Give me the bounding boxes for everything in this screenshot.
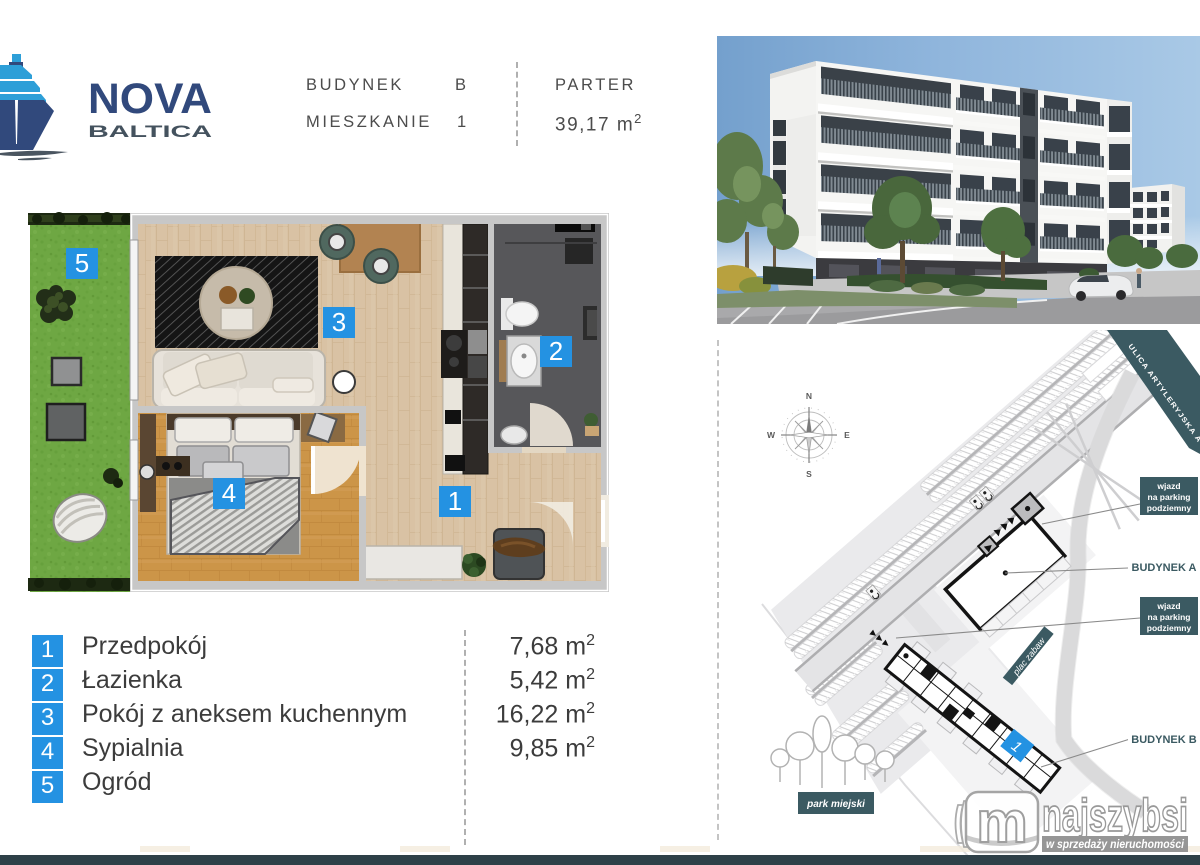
- svg-text:park miejski: park miejski: [806, 799, 865, 810]
- svg-text:W: W: [767, 430, 776, 440]
- svg-text:BUDYNEK B: BUDYNEK B: [1131, 734, 1196, 746]
- svg-text:S: S: [806, 469, 812, 479]
- svg-text:wjazd: wjazd: [1156, 601, 1180, 611]
- svg-text:na parking: na parking: [1148, 492, 1191, 502]
- svg-text:m: m: [976, 790, 1028, 855]
- svg-text:3: 3: [332, 307, 346, 337]
- svg-text:BALTICA: BALTICA: [88, 122, 212, 141]
- svg-text:NOVA: NOVA: [88, 75, 212, 123]
- svg-text:na parking: na parking: [1148, 612, 1191, 622]
- svg-text:najszybsi: najszybsi: [1042, 789, 1188, 841]
- svg-text:wjazd: wjazd: [1156, 481, 1180, 491]
- svg-text:4: 4: [222, 478, 236, 508]
- svg-text:1: 1: [448, 486, 462, 516]
- svg-text:plac zabaw: plac zabaw: [1010, 635, 1047, 677]
- svg-text:w sprzedaży nieruchomości: w sprzedaży nieruchomości: [1046, 837, 1185, 851]
- svg-text:N: N: [806, 391, 812, 401]
- svg-text:E: E: [844, 430, 850, 440]
- svg-text:podziemny: podziemny: [1147, 503, 1192, 513]
- svg-text:BUDYNEK A: BUDYNEK A: [1132, 562, 1197, 574]
- svg-text:2: 2: [549, 336, 563, 366]
- svg-text:podziemny: podziemny: [1147, 623, 1192, 633]
- svg-text:5: 5: [75, 248, 89, 278]
